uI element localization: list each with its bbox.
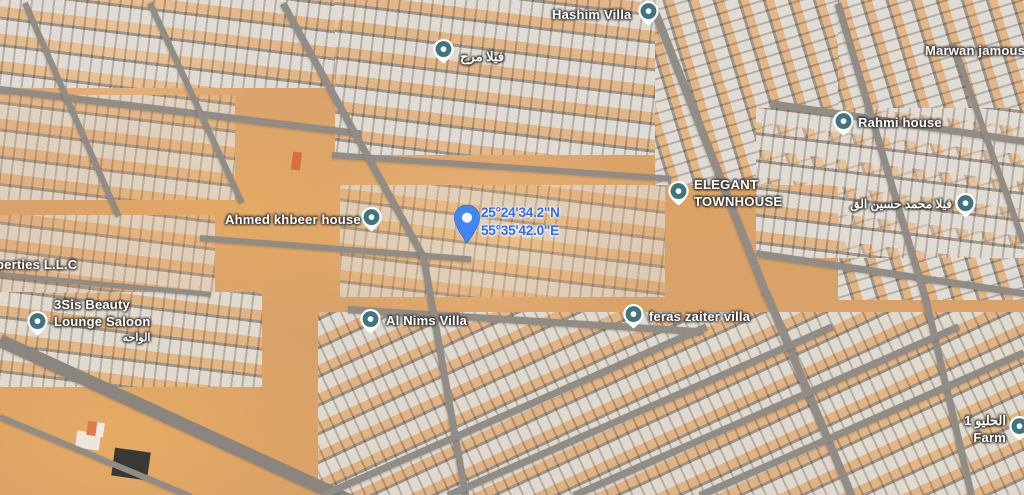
label-line: Farm (930, 429, 1006, 446)
dropped-pin-icon (454, 205, 480, 243)
label-marwan-jamous[interactable]: Marwan jamous (925, 42, 1024, 59)
label-line-arabic: الحليو 1 (930, 412, 1006, 429)
poi-pin-threesis[interactable] (26, 310, 49, 342)
label-feras-zaiter-villa[interactable]: feras zaiter villa (649, 308, 750, 325)
orange-roof-structure (86, 421, 105, 437)
dropped-pin[interactable] (454, 205, 480, 248)
label-properties-llc[interactable]: perties L.L.C (0, 256, 77, 273)
poi-pin-icon (359, 308, 382, 335)
label-threesis-beauty-lounge-saloon[interactable]: 3Sis Beauty Lounge Saloon الواحه (54, 296, 150, 347)
poi-pin-hashim-villa[interactable] (637, 0, 660, 32)
label-line-arabic: الواحه (54, 330, 150, 347)
label-hashim-villa[interactable]: Hashim Villa (552, 6, 631, 23)
coordinate-latitude: 25°24'34.2"N (481, 204, 560, 222)
coordinate-longitude: 55°35'42.0"E (481, 222, 560, 240)
orange-roof-small (291, 152, 302, 171)
poi-pin-rahmi-house[interactable] (832, 110, 855, 142)
poi-pin-elegant-townhouse[interactable] (667, 180, 690, 212)
label-al-nims-villa[interactable]: Al Nims Villa (386, 312, 467, 329)
label-villa-mohammed-hussain[interactable]: فيلا محمد حسين الق (856, 196, 952, 213)
poi-pin-villa-marah[interactable] (432, 38, 455, 70)
poi-pin-ahmed-khbeer[interactable] (360, 206, 383, 238)
label-villa-marah[interactable]: فيلا مرح (460, 48, 504, 65)
label-line: TOWNHOUSE (694, 193, 782, 210)
poi-pin-icon (954, 192, 977, 219)
poi-pin-icon (637, 0, 660, 27)
poi-pin-icon (432, 38, 455, 65)
label-line: ELEGANT (694, 176, 782, 193)
label-elegant-townhouse[interactable]: ELEGANT TOWNHOUSE (694, 176, 782, 210)
poi-pin-icon (667, 180, 690, 207)
map-canvas[interactable]: 25°24'34.2"N 55°35'42.0"E Hashim Villa ف… (0, 0, 1024, 495)
label-ahmed-khbeer-house[interactable]: Ahmed khbeer house (225, 211, 361, 228)
city-block (335, 0, 655, 155)
dropped-pin-coordinates: 25°24'34.2"N 55°35'42.0"E (481, 204, 560, 239)
poi-pin-villa-mohammed[interactable] (954, 192, 977, 224)
poi-pin-helio-farm[interactable] (1008, 415, 1024, 447)
label-line: 3Sis Beauty (54, 296, 150, 313)
poi-pin-icon (360, 206, 383, 233)
poi-pin-al-nims[interactable] (359, 308, 382, 340)
poi-pin-icon (832, 110, 855, 137)
poi-pin-icon (1008, 415, 1024, 442)
poi-pin-feras-zaiter[interactable] (622, 303, 645, 335)
poi-pin-icon (26, 310, 49, 337)
poi-pin-icon (622, 303, 645, 330)
label-helio-1-farm[interactable]: الحليو 1 Farm (930, 412, 1006, 446)
label-line: Lounge Saloon (54, 313, 150, 330)
label-rahmi-house[interactable]: Rahmi house (858, 114, 942, 131)
